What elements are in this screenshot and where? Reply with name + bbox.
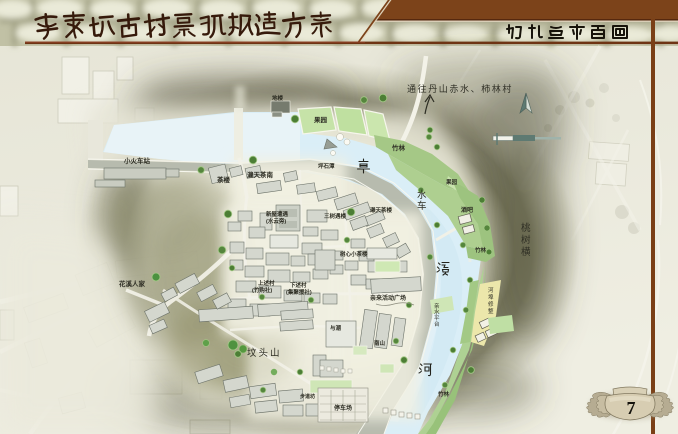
svg-text:水: 水 (417, 189, 427, 201)
svg-text:南山: 南山 (374, 339, 386, 347)
svg-text:台: 台 (434, 320, 440, 328)
svg-text:(水云旁): (水云旁) (266, 217, 286, 225)
svg-text:(集聚援社): (集聚援社) (286, 288, 312, 296)
svg-text:埠: 埠 (488, 293, 494, 301)
svg-text:树心小茶楼: 树心小茶楼 (340, 250, 368, 258)
svg-text:树: 树 (521, 234, 531, 246)
svg-text:7: 7 (627, 398, 636, 418)
svg-text:竹林: 竹林 (437, 390, 450, 398)
svg-text:水: 水 (434, 308, 440, 316)
svg-text:整: 整 (488, 307, 494, 315)
svg-text:濑天茶南: 濑天茶南 (247, 170, 274, 179)
svg-text:濑天茶楼: 濑天茶楼 (370, 206, 393, 214)
svg-text:地楼: 地楼 (272, 94, 284, 102)
svg-text:平: 平 (434, 315, 440, 322)
svg-text:修: 修 (488, 300, 494, 308)
svg-text:三树遇楼: 三树遇楼 (324, 212, 347, 220)
svg-text:果园: 果园 (445, 178, 458, 186)
svg-text:茶楼: 茶楼 (216, 175, 231, 184)
svg-text:竹林: 竹林 (391, 143, 406, 152)
svg-text:新屋遭遇: 新屋遭遇 (266, 210, 289, 218)
svg-text:横: 横 (521, 246, 531, 258)
svg-text:下述村: 下述村 (290, 281, 307, 289)
svg-text:花溪人家: 花溪人家 (119, 279, 146, 288)
svg-text:亲: 亲 (434, 302, 440, 310)
svg-text:小火车站: 小火车站 (123, 156, 151, 165)
svg-text:坪石潭: 坪石潭 (318, 162, 335, 170)
svg-text:步道坊: 步道坊 (300, 393, 315, 400)
svg-text:竹林: 竹林 (474, 246, 487, 254)
svg-text:亲来活动广场: 亲来活动广场 (370, 294, 406, 302)
svg-text:桃: 桃 (521, 222, 531, 234)
svg-text:果园: 果园 (313, 115, 328, 124)
svg-text:车: 车 (417, 200, 427, 212)
svg-text:通往丹山赤水、柿林村: 通往丹山赤水、柿林村 (407, 83, 513, 94)
svg-text:上述村: 上述村 (258, 279, 275, 287)
svg-text:酒吧: 酒吧 (461, 206, 473, 214)
svg-text:河: 河 (488, 286, 494, 294)
svg-text:停车场: 停车场 (334, 404, 352, 412)
svg-text:(竹购社): (竹购社) (252, 286, 272, 294)
svg-text:与潮: 与潮 (330, 324, 342, 332)
svg-text:坟头山: 坟头山 (247, 347, 282, 359)
